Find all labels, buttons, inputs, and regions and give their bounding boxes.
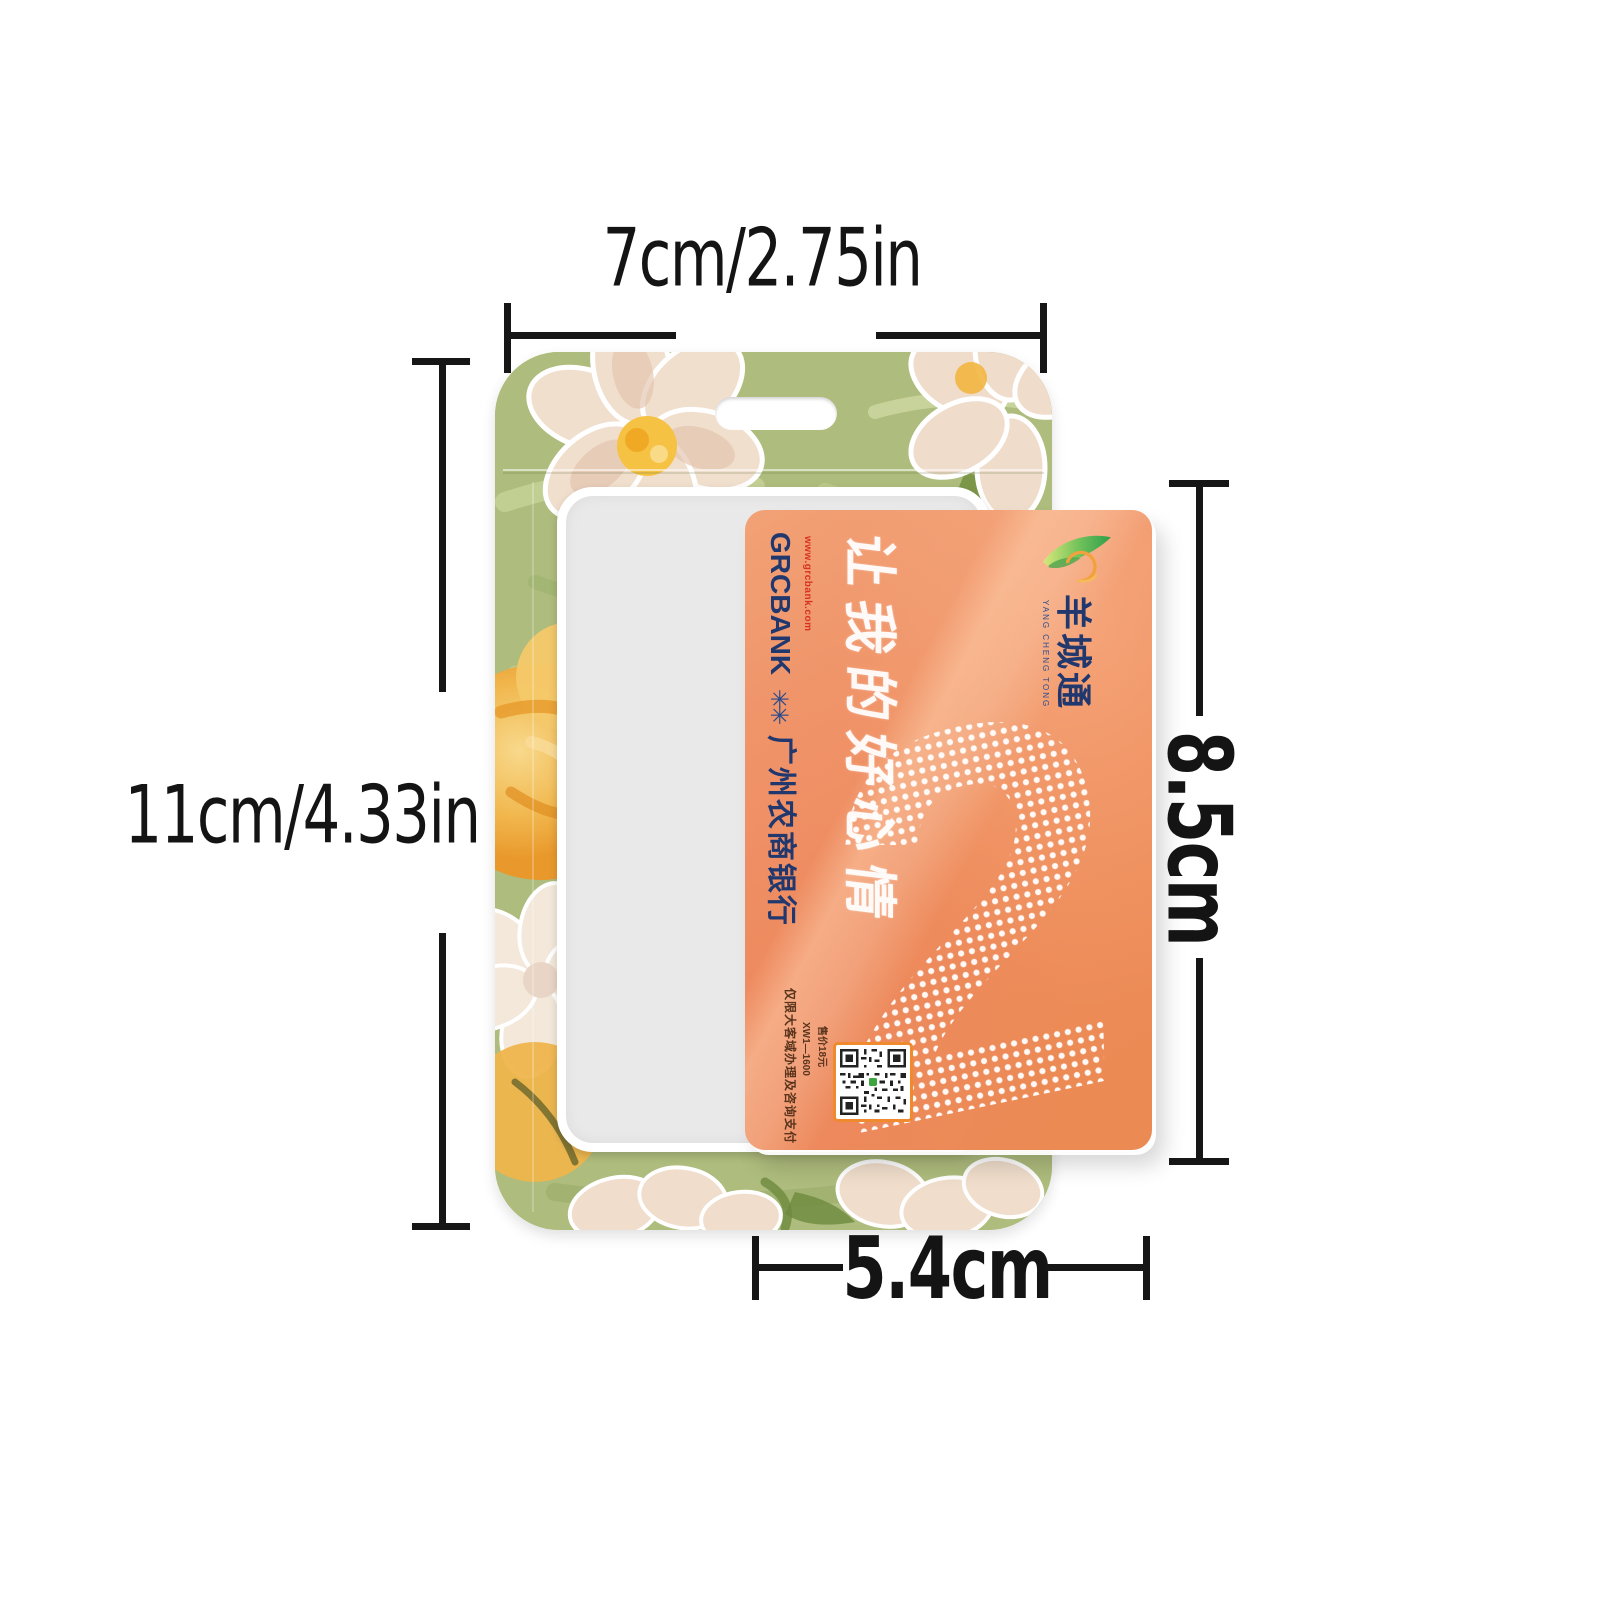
bank-url: www.grcbank.com (801, 536, 813, 631)
slogan-calligraphy: 让我的好心情 (837, 530, 901, 934)
dim-line (876, 332, 1047, 339)
bank-row: GRCBANK ✳✳ 广州农商银行 (761, 532, 797, 927)
hanging-slot (715, 397, 837, 430)
dim-tick (1040, 303, 1047, 373)
brand-name-en: YANG CHENG TONG (1040, 600, 1050, 708)
qr-code (833, 1042, 913, 1122)
fineprint-model: XW1—1600 (799, 1022, 811, 1076)
dim-line (504, 332, 676, 339)
holder-height-annotation: 11cm/4.33in (62, 769, 542, 862)
dim-tick (1169, 1158, 1229, 1165)
bank-name-cn: 广州农商银行 (764, 735, 797, 927)
card-height-label: 8.5cm (1148, 731, 1251, 945)
fineprint-price: 售价18元 (815, 1026, 827, 1067)
dim-line (439, 358, 446, 692)
holder-width-annotation: 7cm/2.75in (547, 212, 978, 305)
dim-tick (1143, 1236, 1150, 1300)
card-width-label: 5.4cm (842, 1219, 1051, 1319)
dim-tick (412, 1223, 470, 1230)
dim-line (1046, 1264, 1150, 1271)
card-height-annotation: 8.5cm (1148, 693, 1251, 983)
holder-width-label: 7cm/2.75in (603, 212, 922, 305)
product-dimension-diagram: 2 羊城通 YANG CHENG TONG GRCBANK ✳✳ 广州农商银行 … (0, 0, 1600, 1600)
grc-bank-logo-icon: ✳✳ (765, 689, 792, 721)
dim-line (1196, 958, 1203, 1165)
dim-line (752, 1264, 843, 1271)
fineprint-notice: 仅限大客域办理及咨询支付 (783, 988, 797, 1144)
dim-line (439, 933, 446, 1230)
transit-card: 2 羊城通 YANG CHENG TONG GRCBANK ✳✳ 广州农商银行 … (745, 510, 1152, 1150)
bank-name-en: GRCBANK (765, 532, 796, 675)
holder-height-label: 11cm/4.33in (125, 769, 480, 862)
dim-line (1196, 480, 1203, 716)
qr-pattern (840, 1049, 906, 1115)
brand-name-cn: 羊城通 (1051, 594, 1095, 711)
yangchengtong-leaf-swirl-icon (1037, 524, 1117, 590)
